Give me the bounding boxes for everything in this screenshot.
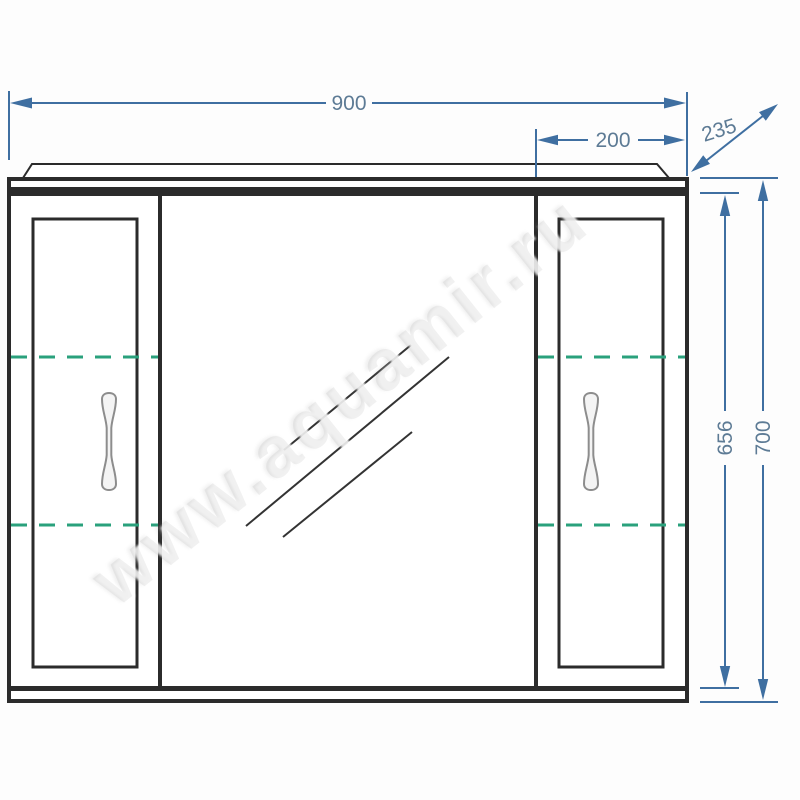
top-shadow-band [11, 187, 685, 196]
dim-700-arrow-down [758, 679, 768, 700]
dim-656-arrow-up [720, 195, 730, 216]
dim-700-arrow-up [758, 180, 768, 201]
dim-200-arrow-left [537, 135, 558, 145]
drawing-canvas: 900 200 235 656 700 www.aquamir.ru [0, 0, 800, 800]
cabinet-drawing: 900 200 235 656 700 [0, 0, 800, 800]
dim-235-label: 235 [699, 114, 739, 146]
right-divider [534, 196, 538, 686]
dim-235-arrow-far [759, 104, 778, 121]
left-divider [158, 196, 162, 686]
dim-900-arrow-left [10, 98, 32, 109]
crown-top-panel [23, 164, 669, 178]
dim-656-label: 656 [714, 420, 737, 455]
dim-200-label: 200 [595, 129, 630, 152]
dim-200-arrow-right [664, 135, 685, 145]
dim-900-arrow-right [664, 98, 686, 109]
dim-656-arrow-down [720, 666, 730, 687]
dim-900-label: 900 [331, 92, 366, 115]
bottom-shelf-line [11, 686, 685, 691]
dim-700-label: 700 [752, 420, 775, 455]
dim-235-arrow-near [691, 155, 710, 172]
